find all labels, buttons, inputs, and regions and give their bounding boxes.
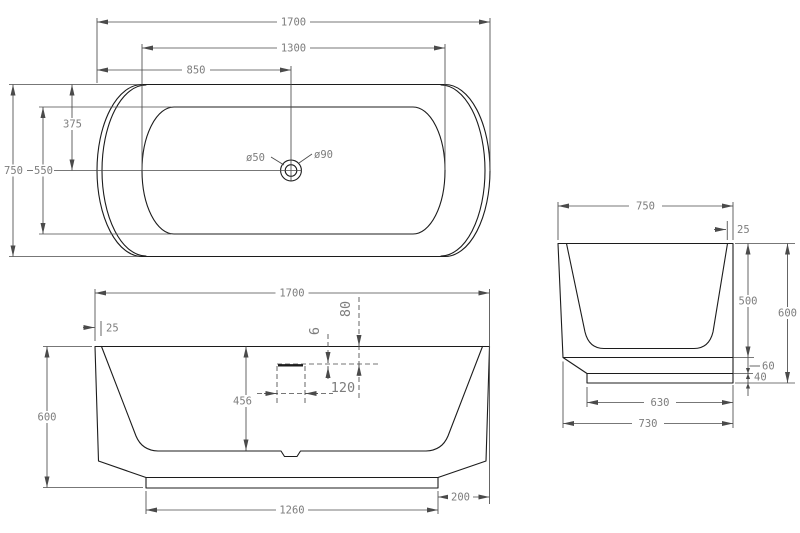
dim-side-base-height: 40 [754, 372, 767, 384]
dim-top-inner-width: 550 [34, 165, 53, 177]
dim-front-base-length: 1260 [279, 505, 304, 517]
dim-40-arrow-up [746, 383, 750, 389]
dim-side-overall-height: 600 [778, 308, 797, 320]
technical-drawing-canvas: 1700 1300 850 750 550 375 ø50 ø90 [0, 0, 800, 533]
dim-front-overflow-width: 120 [331, 380, 355, 396]
dim-side-overall-width: 750 [636, 201, 655, 213]
dim-top-drain-from-side: 375 [63, 119, 82, 131]
dim-side-rim-thickness: 25 [737, 224, 750, 236]
leader-drain-small [271, 157, 284, 165]
dim-drain-small-diameter: ø50 [246, 152, 265, 164]
dim-front-overall-height: 600 [38, 412, 57, 424]
top-view: 1700 1300 850 750 550 375 ø50 ø90 [3, 16, 490, 257]
dim-side-bottom-width: 730 [639, 418, 658, 430]
dim-front-base-inset: 200 [451, 492, 470, 504]
dim-front-overflow-drop: 80 [338, 301, 354, 317]
dim-top-overall-length: 1700 [281, 17, 306, 29]
bathtub-three-view-drawing: 1700 1300 850 750 550 375 ø50 ø90 [0, 0, 800, 533]
plan-inner-rim-arc-right [441, 85, 485, 256]
front-view: 1700 25 600 456 120 80 6 1260 200 [36, 287, 490, 517]
side-view: 750 25 500 600 60 40 630 730 [558, 200, 799, 430]
front-basin-outline [102, 347, 483, 457]
dim-top-inner-length: 1300 [281, 43, 306, 55]
dim-side-inner-depth: 500 [739, 296, 758, 308]
front-outer-outline [95, 347, 490, 489]
dim-front-overflow-offset: 6 [307, 327, 323, 335]
dim-top-overall-width: 750 [4, 165, 23, 177]
side-basin-outline [567, 244, 728, 349]
leader-drain-large [299, 154, 312, 163]
dim-40-arrow-down [746, 368, 750, 374]
side-outer-outline [558, 244, 733, 384]
dim-front-rim-to-basin-bottom: 456 [233, 396, 252, 408]
dim-top-drain-from-left: 850 [187, 65, 206, 77]
dim-drain-large-diameter: ø90 [314, 149, 333, 161]
dim-front-rim-thickness: 25 [106, 323, 119, 335]
dim-front-overall-length: 1700 [279, 288, 304, 300]
dim-side-base-width: 630 [651, 397, 670, 409]
dim-60-arrow-up [746, 374, 750, 380]
